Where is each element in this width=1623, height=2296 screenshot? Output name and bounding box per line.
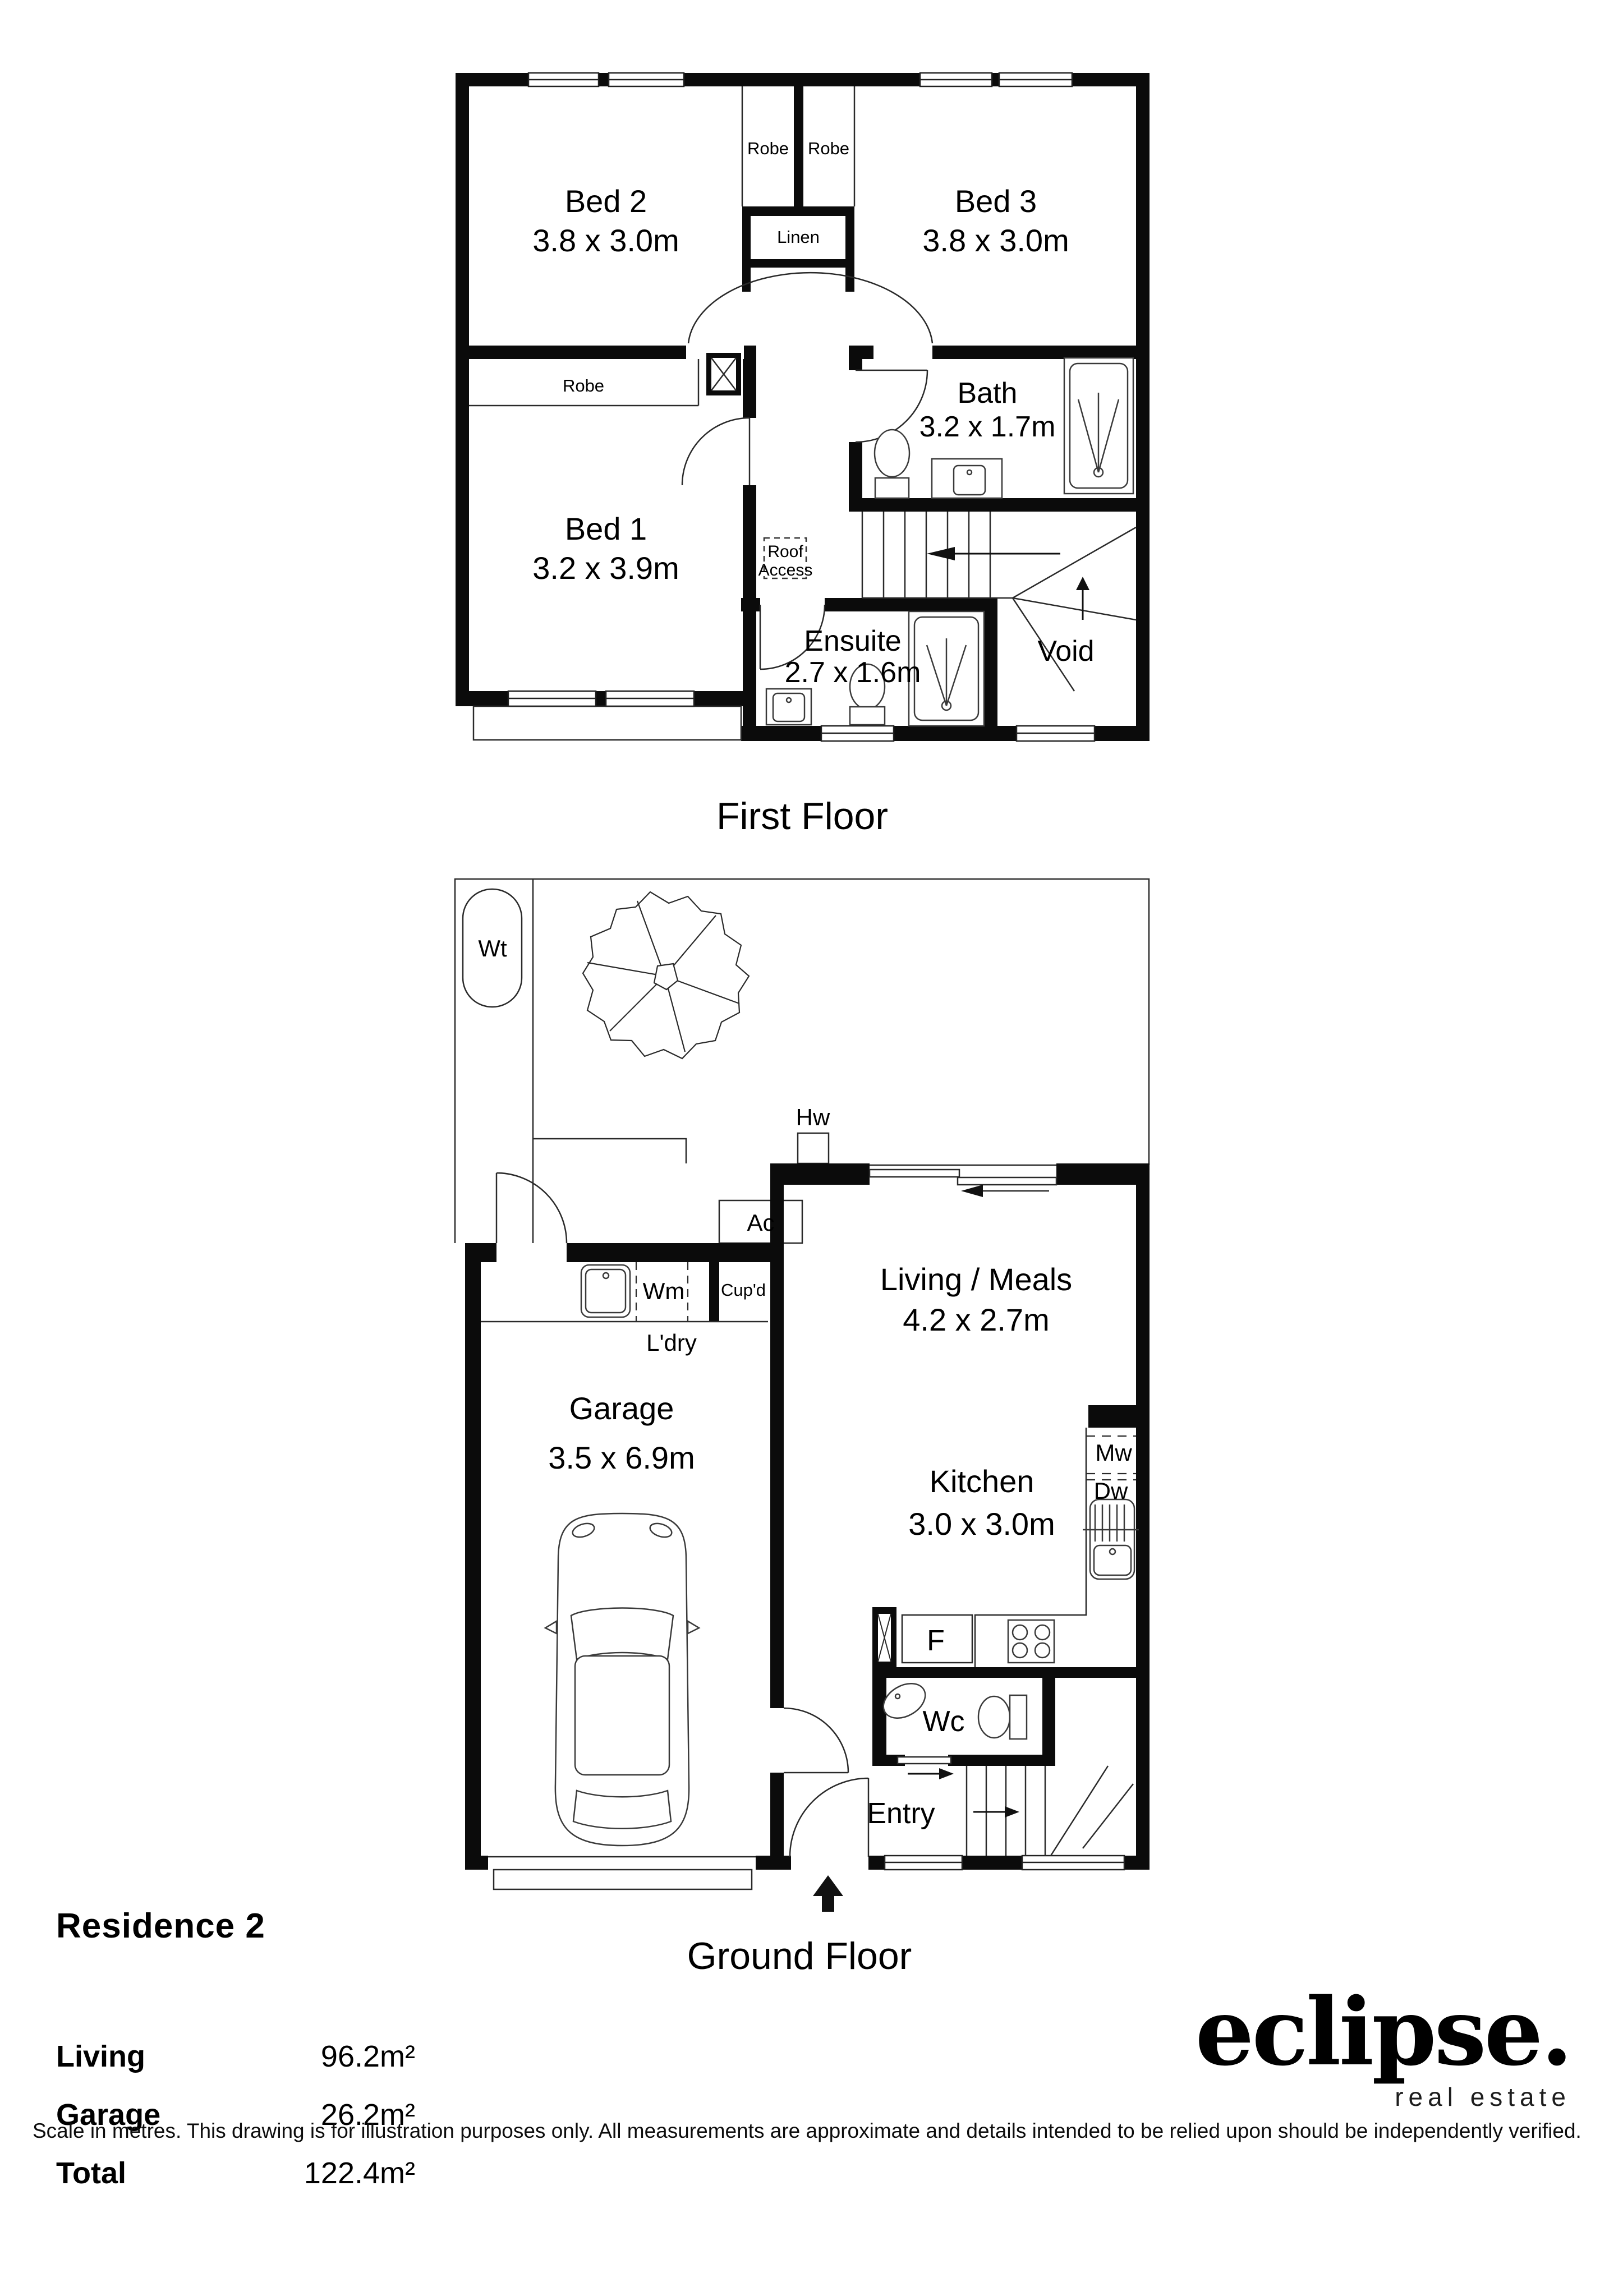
area-value: 96.2m² (321, 2027, 415, 2086)
bed3-dims: 3.8 x 3.0m (922, 223, 1069, 258)
laundry-sink-icon (581, 1265, 630, 1317)
toilet-cistern-icon (850, 707, 885, 725)
lot-boundary (455, 879, 1149, 1243)
bed3-name: Bed 3 (955, 183, 1037, 219)
microwave-label: Mw (1095, 1439, 1132, 1466)
first-floor-title: First Floor (716, 795, 888, 838)
ground-floor-title: Ground Floor (687, 1935, 912, 1977)
sliding-door (870, 1165, 1056, 1197)
roof-access-label-1: Roof (767, 542, 803, 561)
washing-machine-label: Wm (643, 1278, 685, 1304)
kitchen-sink-icon (1094, 1545, 1131, 1575)
kitchen-dims: 3.0 x 3.0m (908, 1506, 1055, 1542)
ensuite-dims: 2.7 x 1.6m (785, 656, 921, 689)
area-value: 122.4m² (304, 2144, 415, 2202)
floor-plan-page: Bed 2 3.8 x 3.0m Bed 3 3.8 x 3.0m Bed 1 … (0, 0, 1623, 2296)
roof-access-label-2: Access (758, 561, 813, 579)
area-row-living: Living 96.2m² (56, 2027, 415, 2086)
living-name: Living / Meals (880, 1262, 1072, 1297)
area-row-total: Total 122.4m² (56, 2144, 415, 2202)
hot-water-box (798, 1133, 829, 1163)
garage-dims: 3.5 x 6.9m (548, 1440, 695, 1475)
living-dims: 4.2 x 2.7m (903, 1302, 1049, 1337)
ensuite-name: Ensuite (804, 625, 901, 657)
bed1-name: Bed 1 (565, 511, 647, 546)
wc-cistern-icon (1010, 1695, 1027, 1739)
robe-bed1-label: Robe (563, 376, 604, 395)
robe-right-label: Robe (808, 139, 849, 158)
dishwasher-label: Dw (1094, 1478, 1128, 1504)
linen-label: Linen (777, 227, 820, 247)
bed2-dims: 3.8 x 3.0m (532, 223, 679, 258)
void-label: Void (1037, 635, 1094, 668)
toilet-cistern-icon (875, 478, 909, 498)
kitchen-name: Kitchen (930, 1464, 1035, 1499)
bath-dims: 3.2 x 1.7m (919, 411, 1056, 443)
pantry-stub-icon (878, 1614, 891, 1662)
bed1-dims: 3.2 x 3.9m (532, 550, 679, 586)
area-label: Living (56, 2027, 145, 2086)
laundry-label: L'dry (646, 1329, 697, 1356)
entry-label: Entry (867, 1797, 935, 1830)
wc-label: Wc (922, 1705, 964, 1738)
ground-floor-plan: Wt Hw Ac Wm Cup'd L'dry Garage 3.5 x 6.9… (455, 879, 1150, 1977)
bed2-name: Bed 2 (565, 183, 647, 219)
air-conditioner-label: Ac (747, 1209, 774, 1236)
logo-tagline-text: real estate (1178, 2082, 1571, 2112)
first-floor-plan: Bed 2 3.8 x 3.0m Bed 3 3.8 x 3.0m Bed 1 … (456, 73, 1150, 838)
logo-brand-text: eclipse. (1178, 1986, 1571, 2078)
chute-icon (711, 358, 736, 390)
water-tank-label: Wt (478, 935, 507, 961)
wc-toilet-icon (978, 1696, 1010, 1738)
garage-door (488, 1857, 756, 1889)
area-table: Living 96.2m² Garage 26.2m² Total 122.4m… (56, 2027, 415, 2202)
toilet-icon (875, 430, 909, 477)
car-icon (545, 1513, 699, 1846)
footer-disclaimer: Scale in metres. This drawing is for ill… (33, 2119, 1598, 2143)
ground-floor-stairs (967, 1766, 1133, 1856)
garage-name: Garage (569, 1391, 674, 1426)
entry-arrow-icon (813, 1875, 843, 1912)
cupboard-label: Cup'd (721, 1280, 766, 1300)
residence-info: Residence 2 Living 96.2m² Garage 26.2m² … (56, 1906, 415, 2202)
eclipse-logo: eclipse. real estate (1178, 1986, 1571, 2112)
area-label: Total (56, 2144, 126, 2202)
residence-title: Residence 2 (56, 1906, 415, 1946)
hot-water-label: Hw (796, 1104, 830, 1130)
robe-left-label: Robe (747, 139, 789, 158)
fridge-label: F (927, 1625, 945, 1657)
wc-pocket-door (898, 1757, 954, 1779)
cooktop-icon (1008, 1620, 1054, 1663)
bath-name: Bath (958, 377, 1018, 409)
tree-icon (583, 892, 749, 1059)
